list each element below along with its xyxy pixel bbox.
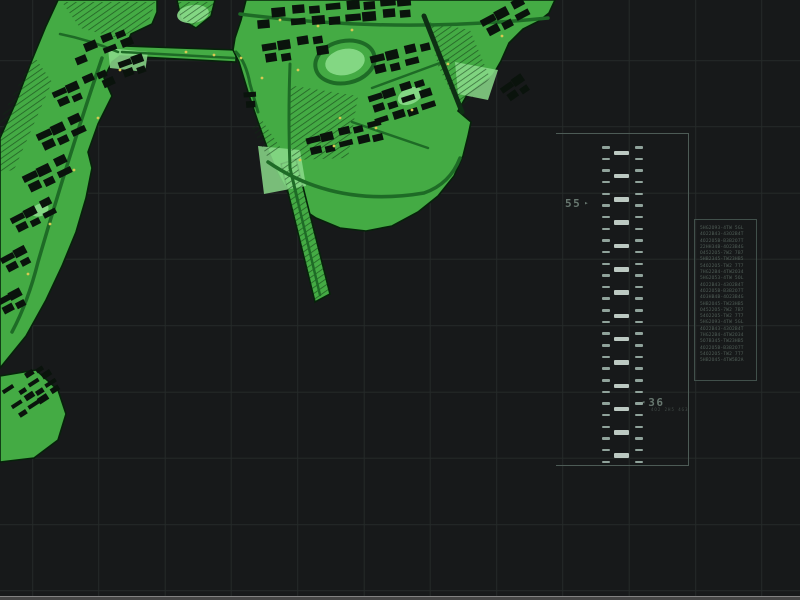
ladder-tick-right xyxy=(635,461,643,464)
building xyxy=(246,101,256,108)
building xyxy=(506,89,519,101)
ladder-tick-left xyxy=(602,426,610,429)
ladder-tick-left xyxy=(602,158,610,161)
ladder-tick-left xyxy=(602,263,610,266)
ladder-bar xyxy=(614,290,629,295)
ladder-tick-left xyxy=(602,193,610,196)
building xyxy=(519,84,530,94)
terrain-hatch xyxy=(288,85,358,160)
ladder-marker-36: ◂36 4O2 2H5 4G3 xyxy=(641,397,664,408)
marker-36-subtext: 4O2 2H5 4G3 xyxy=(651,408,689,412)
building xyxy=(363,1,375,10)
light-dot xyxy=(261,77,264,80)
ladder-tick-left xyxy=(602,181,610,184)
ladder-tick-right xyxy=(635,321,643,324)
ladder-tick-left xyxy=(602,216,610,219)
ladder-tick-right xyxy=(635,332,643,335)
ladder-tick-right xyxy=(635,426,643,429)
ladder-tick-left xyxy=(602,461,610,464)
marker-55-label: 55 xyxy=(565,198,581,209)
ladder-tick-left xyxy=(602,449,610,452)
ladder-tick-left xyxy=(602,344,610,347)
ladder-tick-left xyxy=(602,146,610,149)
light-dot xyxy=(297,69,300,72)
ladder-bar xyxy=(614,314,629,319)
ladder-tick-left xyxy=(602,402,610,405)
light-dot xyxy=(447,63,450,66)
ladder-tick-right xyxy=(635,263,643,266)
ladder-bar xyxy=(614,407,629,412)
ladder-tick-left xyxy=(602,391,610,394)
building xyxy=(346,0,360,10)
ladder-bar xyxy=(614,174,629,179)
light-dot xyxy=(317,25,320,28)
building xyxy=(383,8,396,18)
ladder-tick-right xyxy=(635,286,643,289)
ladder-tick-right xyxy=(635,391,643,394)
light-dot xyxy=(97,117,100,120)
ladder-tick-right xyxy=(635,367,643,370)
ladder-tick-left xyxy=(602,228,610,231)
ladder-tick-left xyxy=(602,169,610,172)
light-dot xyxy=(299,159,302,162)
building xyxy=(243,92,256,98)
map-viewport[interactable]: 55▸ ◂36 4O2 2H5 4G3 5HG2O93-4TW 5GL 4O22… xyxy=(0,0,800,600)
ladder-tick-left xyxy=(602,309,610,312)
ladder-tick-right xyxy=(635,228,643,231)
tactical-map-screen: { "hud": { "grid": { "spacing": 66.3, "o… xyxy=(0,0,800,600)
light-dot xyxy=(213,54,216,57)
ladder-bar xyxy=(614,384,629,389)
building xyxy=(345,13,361,21)
light-dot xyxy=(279,19,282,22)
ladder-tick-right xyxy=(635,414,643,417)
light-dot xyxy=(339,117,342,120)
info-readout-lines: 5HG2O93-4TW 5GL 4O22B43-43O2B4T 4O22O5B-… xyxy=(700,226,756,365)
building xyxy=(362,11,377,22)
light-dot xyxy=(501,35,504,38)
bottom-window-edge xyxy=(0,596,800,600)
ladder-bar xyxy=(614,151,629,156)
ladder-tick-left xyxy=(602,414,610,417)
ladder-tick-right xyxy=(635,309,643,312)
building xyxy=(292,4,305,14)
ladder-tick-right xyxy=(635,297,643,300)
building xyxy=(313,36,324,45)
building xyxy=(329,16,341,25)
ladder-tick-right xyxy=(635,274,643,277)
ladder-tick-left xyxy=(602,437,610,440)
ladder-tick-left xyxy=(602,367,610,370)
building xyxy=(281,53,292,62)
ladder-tick-right xyxy=(635,344,643,347)
ladder-tick-right xyxy=(635,158,643,161)
ladder-tick-left xyxy=(602,297,610,300)
ladder-tick-left xyxy=(602,356,610,359)
ladder-bar xyxy=(614,453,629,458)
ladder-tick-right xyxy=(635,402,643,405)
light-dot xyxy=(27,273,30,276)
ladder-tick-right xyxy=(635,204,643,207)
light-dot xyxy=(119,69,122,72)
ladder-tick-left xyxy=(602,321,610,324)
ladder-tick-left xyxy=(602,274,610,277)
building xyxy=(277,39,291,50)
ladder-tick-right xyxy=(635,239,643,242)
ladder-tick-right xyxy=(635,193,643,196)
ladder-tick-left xyxy=(602,204,610,207)
building xyxy=(297,35,309,45)
building xyxy=(265,52,277,62)
ladder-bar xyxy=(614,430,629,435)
light-dot xyxy=(375,127,378,130)
building xyxy=(326,3,341,11)
ladder-tick-left xyxy=(602,379,610,382)
ladder-bar xyxy=(614,197,629,202)
ladder-tick-right xyxy=(635,216,643,219)
building-cluster xyxy=(499,73,531,103)
building xyxy=(309,5,320,13)
light-dot xyxy=(185,51,188,54)
ladder-bar xyxy=(614,360,629,365)
light-dot xyxy=(411,109,414,112)
ladder-tick-right xyxy=(635,379,643,382)
ladder-tick-left xyxy=(602,239,610,242)
ladder-tick-left xyxy=(602,251,610,254)
building xyxy=(312,15,326,25)
building xyxy=(400,9,411,17)
ladder-tick-right xyxy=(635,169,643,172)
ladder-tick-right xyxy=(635,251,643,254)
ladder-bar xyxy=(614,337,629,342)
light-dot xyxy=(333,145,336,148)
ladder-tick-left xyxy=(602,332,610,335)
light-dot xyxy=(73,169,76,172)
info-readout-panel: 5HG2O93-4TW 5GL 4O22B43-43O2B4T 4O22O5B-… xyxy=(694,219,757,381)
terrain-hatch xyxy=(177,2,214,27)
light-dot xyxy=(351,29,354,32)
light-dot xyxy=(49,223,52,226)
ladder-tick-right xyxy=(635,181,643,184)
ladder-bar xyxy=(614,267,629,272)
ladder-bar xyxy=(614,220,629,225)
ladder-marker-55: 55▸ xyxy=(565,198,588,209)
ladder-tick-left xyxy=(602,286,610,289)
building xyxy=(257,19,270,29)
readout-ladder-panel: 55▸ ◂36 4O2 2H5 4G3 xyxy=(556,133,689,466)
ladder-tick-right xyxy=(635,449,643,452)
ladder-bar xyxy=(614,244,629,249)
arrow-right-icon: ▸ xyxy=(584,200,588,207)
light-dot xyxy=(240,57,243,60)
building xyxy=(271,7,286,18)
ladder-tick-right xyxy=(635,146,643,149)
building xyxy=(316,45,329,56)
ladder-tick-right xyxy=(635,356,643,359)
ladder-tick-right xyxy=(635,437,643,440)
building xyxy=(291,18,306,26)
